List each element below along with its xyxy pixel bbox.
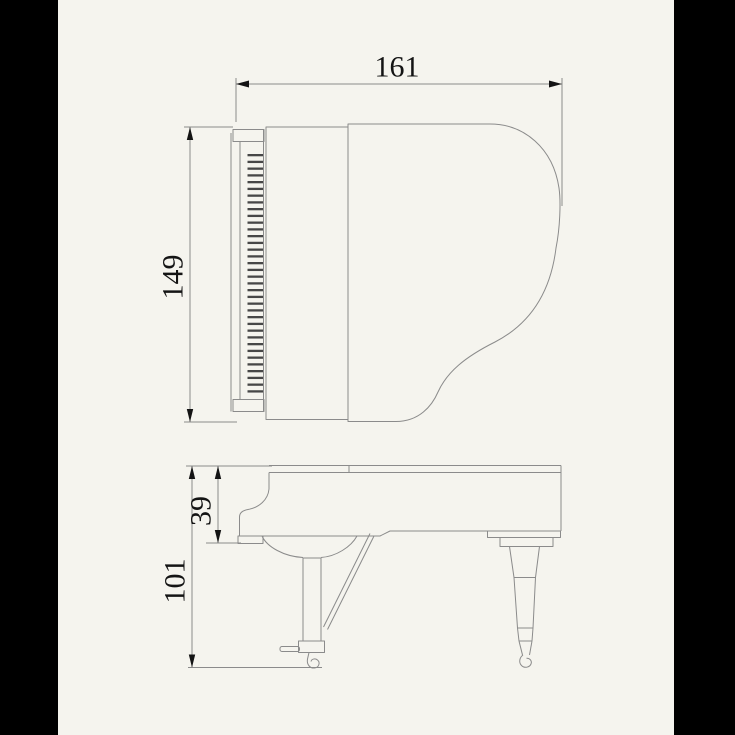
black-key [248, 330, 264, 332]
black-key [248, 303, 264, 305]
black-key [248, 276, 264, 278]
black-key [248, 228, 264, 230]
black-key [248, 282, 264, 284]
black-key [248, 188, 264, 190]
black-key [248, 336, 264, 338]
black-key [248, 249, 264, 251]
black-key [248, 235, 264, 237]
black-key [248, 390, 264, 392]
black-key [248, 208, 264, 210]
black-key [248, 154, 264, 156]
dim-depth-label: 149 [157, 255, 190, 300]
black-key [248, 222, 264, 224]
black-key [248, 262, 264, 264]
black-key [248, 323, 264, 325]
black-key [248, 269, 264, 271]
black-key [248, 296, 264, 298]
black-key [248, 181, 264, 183]
black-key [248, 357, 264, 359]
black-key [248, 168, 264, 170]
black-key [248, 309, 264, 311]
paper-background [58, 0, 674, 735]
dim-width-label: 161 [375, 51, 420, 84]
black-key [248, 377, 264, 379]
black-key [248, 350, 264, 352]
black-key [248, 242, 264, 244]
black-key [248, 195, 264, 197]
diagram-canvas: 161 149 39 101 [0, 0, 735, 735]
dim-total-height-label: 101 [159, 559, 192, 604]
black-key [248, 384, 264, 386]
black-key [248, 255, 264, 257]
black-key [248, 215, 264, 217]
black-key [248, 174, 264, 176]
black-key [248, 289, 264, 291]
piano-dimension-diagram: 161 149 39 101 [0, 0, 735, 735]
dim-case-height-label: 39 [185, 496, 218, 526]
black-key [248, 343, 264, 345]
black-key [248, 201, 264, 203]
black-key [248, 161, 264, 163]
black-key [248, 316, 264, 318]
black-key [248, 363, 264, 365]
black-key [248, 370, 264, 372]
